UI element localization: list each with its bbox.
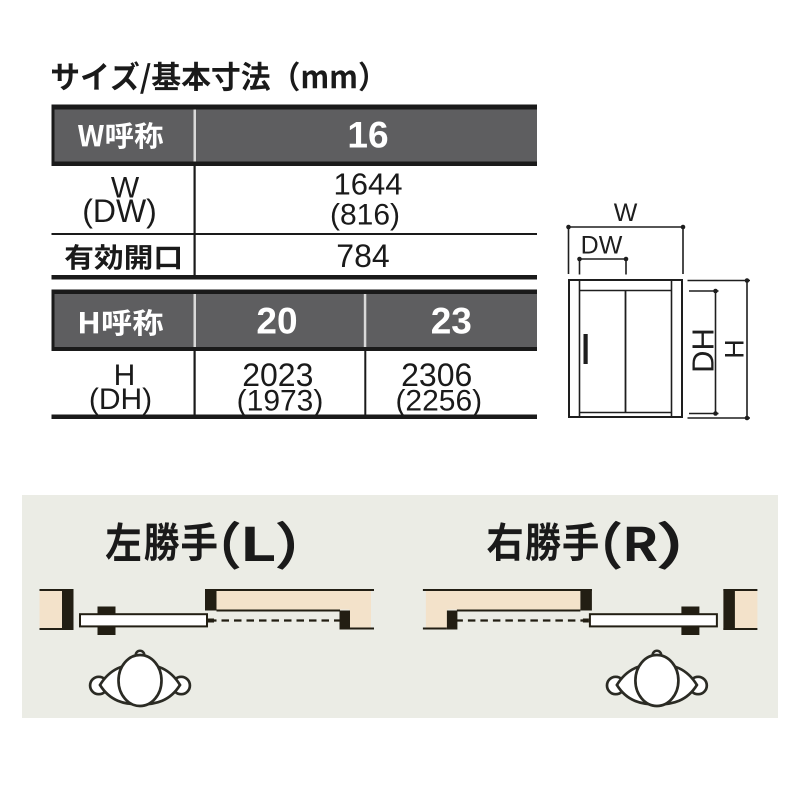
svg-text:(1973): (1973) xyxy=(237,385,324,418)
svg-text:(DW): (DW) xyxy=(82,193,157,229)
svg-text:784: 784 xyxy=(336,238,389,274)
svg-text:20: 20 xyxy=(256,301,297,342)
svg-text:1644: 1644 xyxy=(334,167,403,202)
svg-text:(DH): (DH) xyxy=(89,383,152,416)
svg-text:W: W xyxy=(614,199,638,227)
svg-text:DW: DW xyxy=(581,232,623,260)
svg-text:H: H xyxy=(720,339,750,359)
svg-text:DH: DH xyxy=(686,328,721,373)
svg-text:(816): (816) xyxy=(330,199,400,232)
svg-text:(2256): (2256) xyxy=(395,385,482,418)
svg-text:23: 23 xyxy=(431,301,472,342)
svg-text:16: 16 xyxy=(347,115,388,156)
